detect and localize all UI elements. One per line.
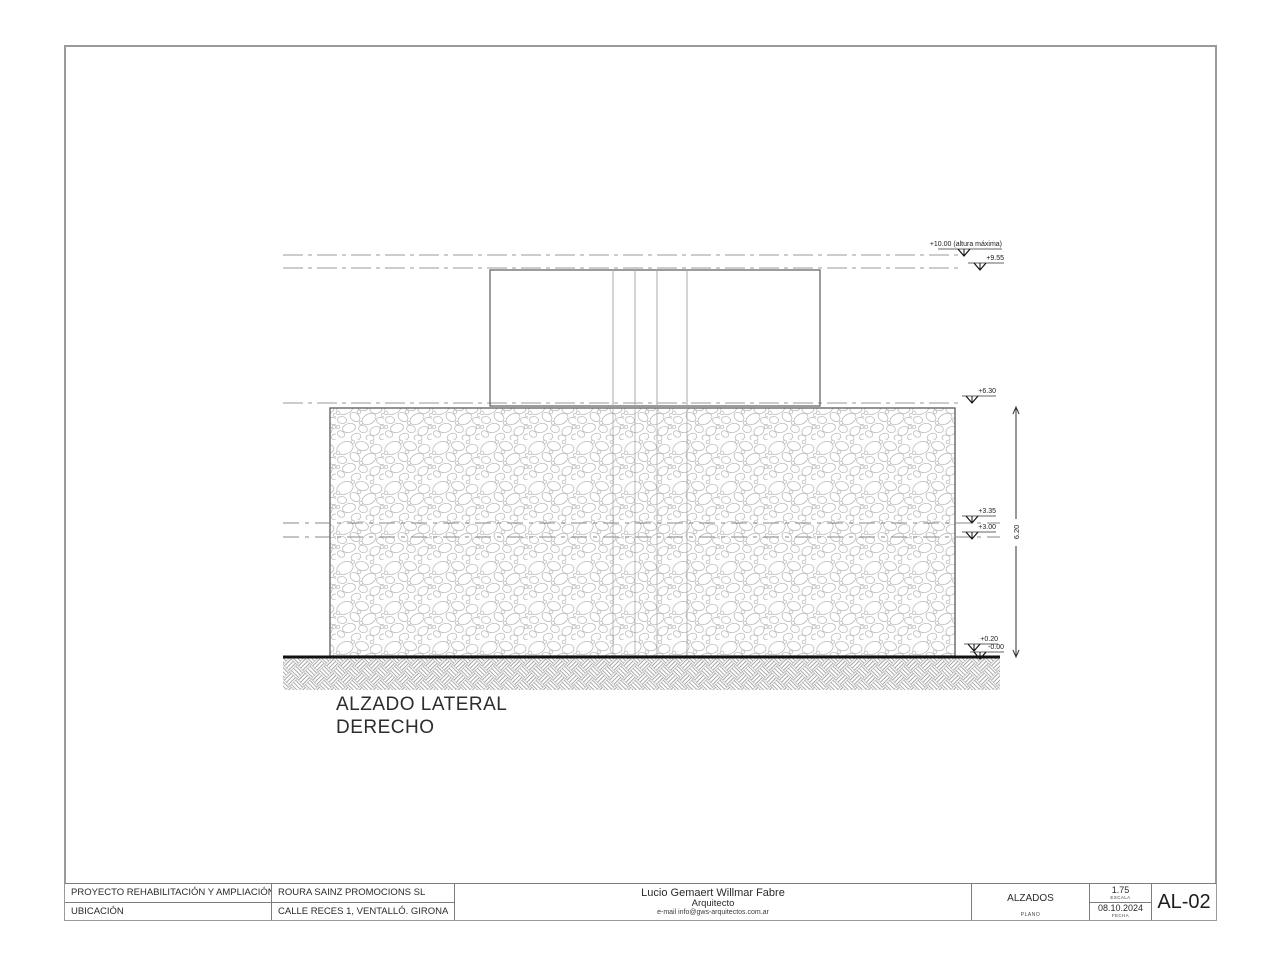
- date-caption: FECHA: [1112, 913, 1129, 918]
- drawing-title: ALZADO LATERAL DERECHO: [336, 694, 507, 738]
- level-marker: +9.55: [968, 255, 1004, 270]
- sheet-number: AL-02: [1157, 884, 1210, 920]
- svg-text:DERECHO: DERECHO: [336, 717, 435, 738]
- project-label: PROYECTO REHABILITACIÓN Y AMPLIACIÓN: [65, 884, 271, 903]
- elevation-drawing: 6.20 +10.00 (altura máxima) +9.55 +6.30: [0, 0, 1280, 960]
- level-marker: +10.00 (altura máxima): [930, 241, 1002, 256]
- date-value: 08.10.2024: [1098, 904, 1143, 913]
- svg-text:+0.20: +0.20: [980, 636, 998, 643]
- client-name: ROURA SAINZ PROMOCIONS SL: [272, 884, 454, 903]
- svg-text:ALZADO LATERAL: ALZADO LATERAL: [336, 694, 507, 715]
- dimension-label: 6.20: [1012, 525, 1021, 540]
- plano-cell: ALZADOS PLANO: [972, 884, 1090, 920]
- svg-text:+9.55: +9.55: [986, 255, 1004, 262]
- title-block: PROYECTO REHABILITACIÓN Y AMPLIACIÓN UBI…: [65, 883, 1216, 920]
- svg-text:+3.35: +3.35: [978, 508, 996, 515]
- scale-value: 1.75: [1112, 886, 1130, 895]
- architect-email: e-mail info@gws-arquitectos.com.ar: [657, 909, 769, 917]
- scale-date-cell: 1.75 ESCALA 08.10.2024 FECHA: [1090, 884, 1152, 920]
- level-marker: +6.30: [962, 388, 996, 403]
- svg-text:-0.00: -0.00: [988, 644, 1004, 651]
- dimension-line: 6.20: [1012, 407, 1021, 657]
- stone-wall: [330, 408, 955, 656]
- svg-text:+10.00 (altura máxima): +10.00 (altura máxima): [930, 241, 1002, 248]
- svg-text:+3.00: +3.00: [978, 524, 996, 531]
- scale-caption: ESCALA: [1110, 895, 1130, 900]
- level-axis-lines: [283, 255, 963, 403]
- project-address: CALLE RECES 1, VENTALLÓ. GIRONA: [272, 903, 454, 921]
- sheet-number-cell: AL-02: [1152, 884, 1216, 920]
- title-block-project-labels: PROYECTO REHABILITACIÓN Y AMPLIACIÓN UBI…: [65, 884, 272, 920]
- title-block-project-values: ROURA SAINZ PROMOCIONS SL CALLE RECES 1,…: [272, 884, 455, 920]
- plano-caption: PLANO: [1021, 912, 1040, 918]
- architect-title: Arquitecto: [692, 899, 735, 909]
- ground-hatch: [283, 658, 1000, 690]
- location-label: UBICACIÓN: [65, 903, 271, 921]
- architect-info: Lucio Gemaert Willmar Fabre Arquitecto e…: [455, 884, 972, 920]
- level-marker: +3.35: [962, 508, 996, 523]
- plano-value: ALZADOS: [1007, 884, 1054, 912]
- upper-structure: [490, 270, 820, 406]
- drawing-sheet: 6.20 +10.00 (altura máxima) +9.55 +6.30: [0, 0, 1280, 960]
- svg-text:+6.30: +6.30: [978, 388, 996, 395]
